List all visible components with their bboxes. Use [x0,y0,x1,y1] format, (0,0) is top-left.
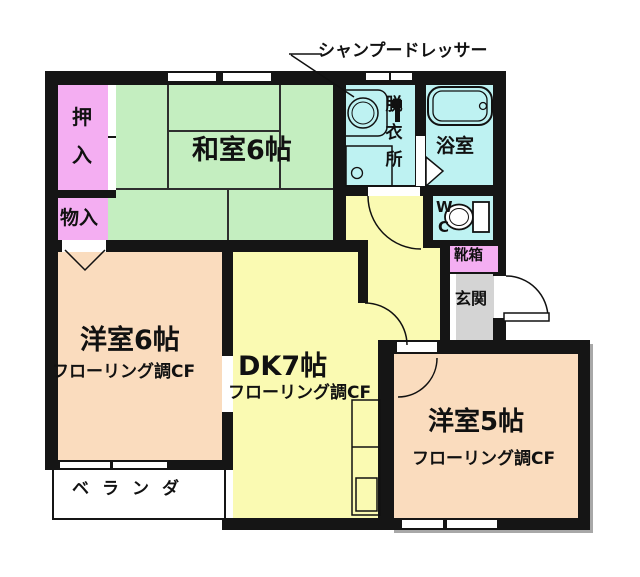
oshiire-sliding-door-split [108,136,116,138]
room-label-veranda: ベランダ [72,480,192,499]
wall [45,71,58,470]
tatami-line [167,85,169,190]
room-label-washitsu: 和室6帖 [192,136,292,166]
room-label-monoire: 物入 [60,208,98,229]
room-label-oshiire: 押入 [70,98,94,174]
datsuijo-door-opening [368,187,420,196]
entrance-door-leaf [504,313,549,321]
wall [378,340,394,530]
wall [578,340,590,530]
room-label-yoshitsu6: 洋室6帖 [80,326,180,356]
room-label-yokushitsu: 浴室 [436,136,474,157]
yoshitsu5-door-opening [397,342,437,352]
room-genkan-floor [452,272,498,344]
wall [52,190,116,198]
entrance-door-arc [506,276,548,318]
room-label-dk: DK7帖 [238,352,327,382]
room-datsuijo-floor [346,85,418,188]
wall [358,240,368,303]
room-sublabel-yoshitsu5: フローリング調CF [412,450,555,469]
balcony-sliding-door [60,462,110,468]
wall [45,71,506,85]
room-label-datsuijo: 脱衣所 [384,92,404,175]
room-label-kutsubako: 靴箱 [454,249,483,265]
room-label-yoshitsu5: 洋室5帖 [428,408,524,437]
room-sublabel-yoshitsu6: フローリング調CF [52,363,195,382]
window-opening [447,520,497,528]
outline-shadow [590,344,593,533]
floorplan-canvas: シャンプードレッサー 押入 物入 和室6帖 脱衣所 浴室 WC 靴箱 玄関 洋室… [0,0,640,577]
bathroom-door-opening [416,136,425,186]
window-opening [391,73,412,80]
room-sublabel-dk: フローリング調CF [228,384,371,403]
callout-label: シャンプードレッサー [318,42,488,61]
outline-shadow [394,530,593,533]
window-opening [402,520,443,528]
hallway-upper-floor [346,196,423,240]
room-label-wc: WC [436,197,451,238]
tatami-line [167,130,281,132]
wall [333,85,346,250]
balcony-sliding-door [113,462,167,468]
window-opening [366,73,389,80]
window-opening [168,73,216,81]
monoire-door-opening [62,240,106,252]
room-label-genkan: 玄関 [455,290,487,308]
tatami-line [112,188,346,190]
window-opening [223,73,271,81]
entrance-door-opening [494,276,506,318]
